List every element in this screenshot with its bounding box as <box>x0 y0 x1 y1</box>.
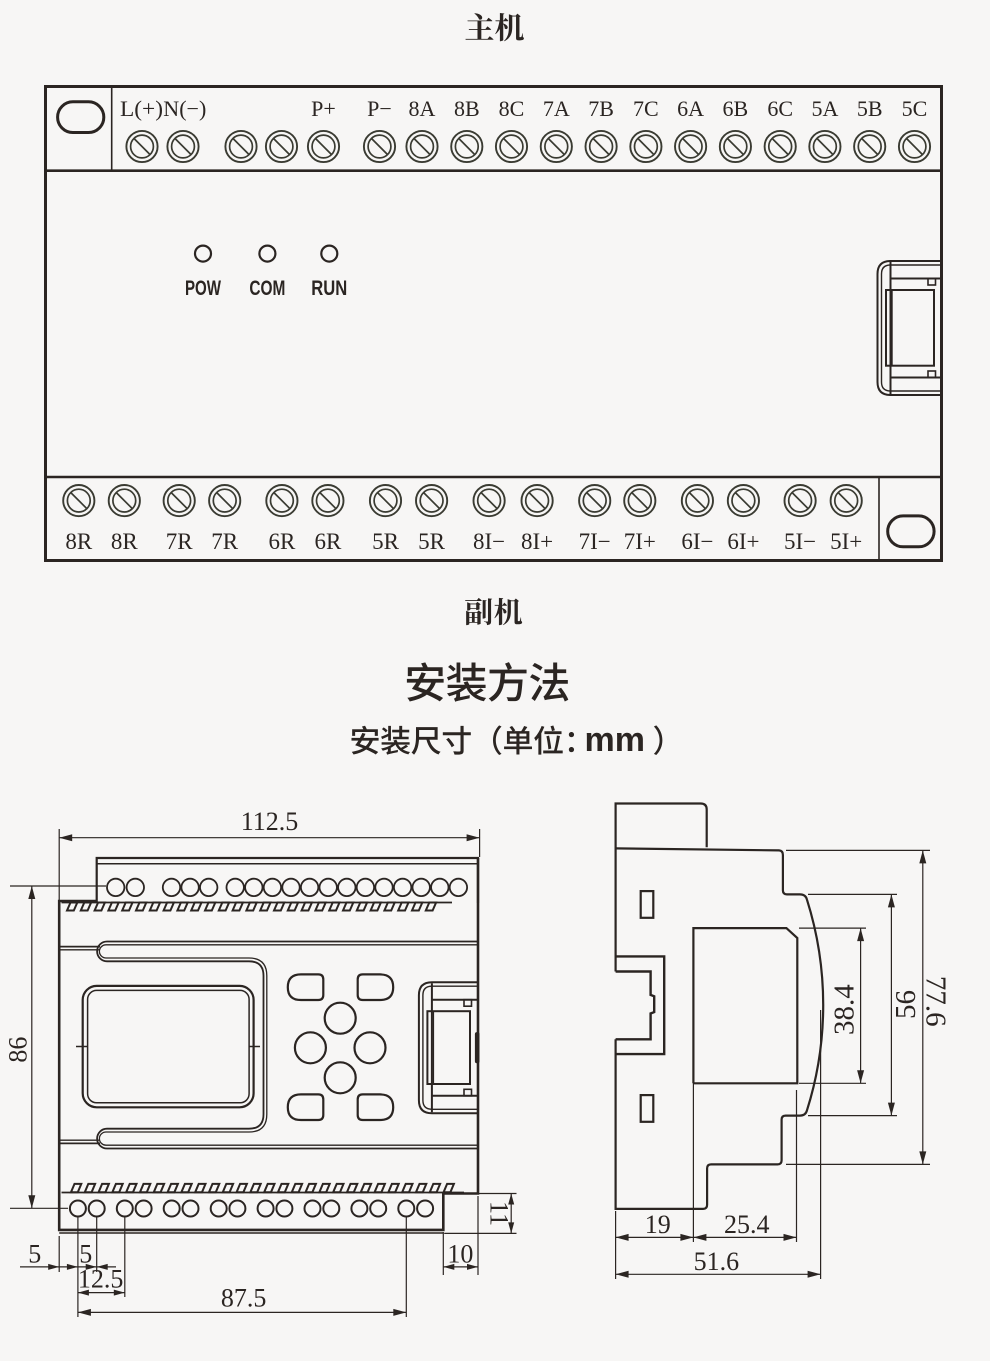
svg-text:5B: 5B <box>857 96 883 121</box>
svg-text:19: 19 <box>645 1210 671 1239</box>
svg-text:N(−): N(−) <box>163 96 206 121</box>
svg-text:7C: 7C <box>633 96 659 121</box>
svg-text:5C: 5C <box>902 96 928 121</box>
svg-text:10: 10 <box>447 1240 473 1269</box>
svg-text:L(+): L(+) <box>120 96 163 121</box>
svg-text:56: 56 <box>890 990 922 1019</box>
svg-text:7A: 7A <box>543 96 570 121</box>
svg-text:112.5: 112.5 <box>241 807 299 836</box>
svg-text:6I+: 6I+ <box>727 529 759 554</box>
svg-text:6B: 6B <box>723 96 749 121</box>
svg-text:38.4: 38.4 <box>829 984 861 1035</box>
svg-text:POW: POW <box>185 277 221 300</box>
svg-text:8A: 8A <box>409 96 436 121</box>
svg-text:5I−: 5I− <box>784 529 816 554</box>
svg-text:6R: 6R <box>268 529 296 554</box>
svg-text:8I−: 8I− <box>473 529 505 554</box>
svg-text:8R: 8R <box>111 529 139 554</box>
svg-text:25.4: 25.4 <box>724 1210 770 1239</box>
svg-text:5: 5 <box>28 1240 41 1269</box>
svg-text:7R: 7R <box>166 529 194 554</box>
svg-text:8I+: 8I+ <box>521 529 553 554</box>
svg-text:8C: 8C <box>499 96 525 121</box>
svg-text:12.5: 12.5 <box>78 1265 124 1294</box>
svg-text:51.6: 51.6 <box>694 1247 740 1276</box>
svg-text:COM: COM <box>249 277 285 300</box>
svg-text:6I−: 6I− <box>681 529 713 554</box>
svg-text:7I+: 7I+ <box>624 529 656 554</box>
svg-text:P−: P− <box>367 96 392 121</box>
svg-text:86: 86 <box>3 1037 32 1063</box>
svg-text:87.5: 87.5 <box>221 1283 267 1312</box>
svg-text:P+: P+ <box>311 96 336 121</box>
svg-text:mm: mm <box>585 721 645 759</box>
svg-text:6R: 6R <box>314 529 342 554</box>
svg-text:8B: 8B <box>454 96 480 121</box>
svg-text:77.6: 77.6 <box>920 976 952 1027</box>
svg-text:7I−: 7I− <box>579 529 611 554</box>
svg-text:RUN: RUN <box>311 277 347 300</box>
svg-text:7R: 7R <box>211 529 239 554</box>
svg-text:8R: 8R <box>65 529 93 554</box>
svg-text:7B: 7B <box>588 96 614 121</box>
svg-text:5A: 5A <box>811 96 838 121</box>
svg-text:11: 11 <box>484 1201 513 1226</box>
svg-text:5R: 5R <box>372 529 400 554</box>
svg-text:5I+: 5I+ <box>830 529 862 554</box>
svg-text:5R: 5R <box>418 529 446 554</box>
svg-text:6A: 6A <box>677 96 704 121</box>
svg-text:6C: 6C <box>767 96 793 121</box>
